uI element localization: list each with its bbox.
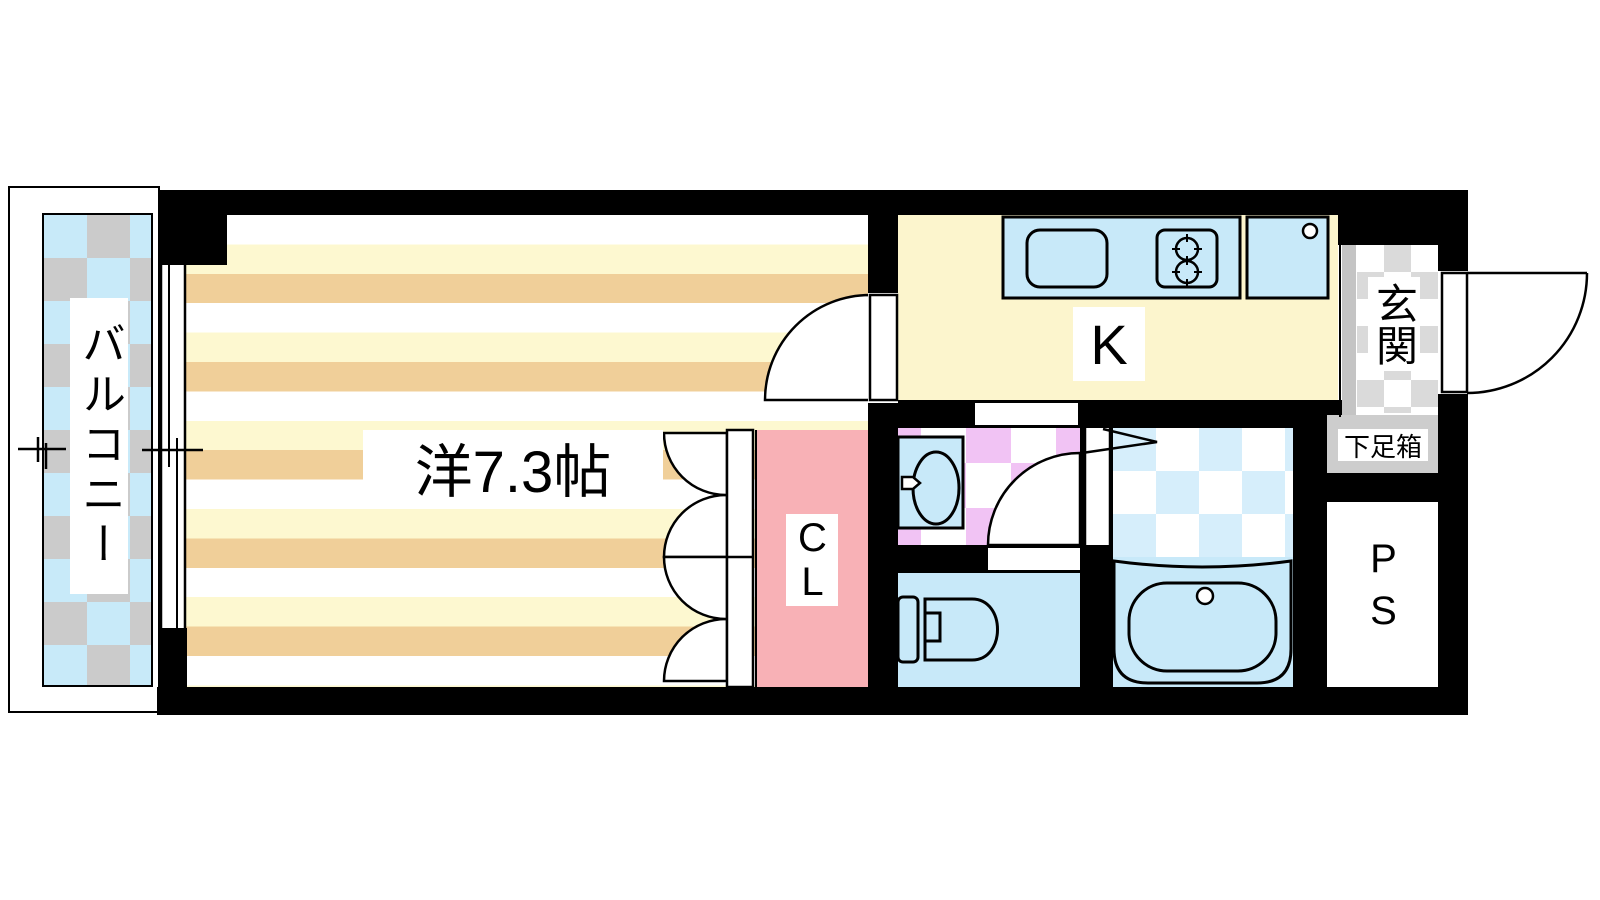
floor-plan: バルコニー 洋7.3帖 K CL 玄関 下足箱 PS (0, 0, 1600, 900)
closet-label: CL (786, 514, 838, 606)
washroom (898, 428, 1080, 545)
entrance-step (1342, 245, 1356, 417)
entrance-label: 玄関 (1368, 277, 1420, 371)
shoe-box-label: 下足箱 (1338, 429, 1428, 461)
entrance-door-swing-icon (1438, 271, 1587, 394)
toilet-room (898, 573, 1080, 687)
bathroom (1113, 428, 1293, 557)
bathtub-area (1113, 557, 1293, 687)
pipe-space-label: PS (1358, 538, 1408, 640)
balcony-label: バルコニー (70, 298, 128, 594)
main-room-label: 洋7.3帖 (363, 430, 663, 504)
kitchen-label: K (1073, 307, 1145, 381)
